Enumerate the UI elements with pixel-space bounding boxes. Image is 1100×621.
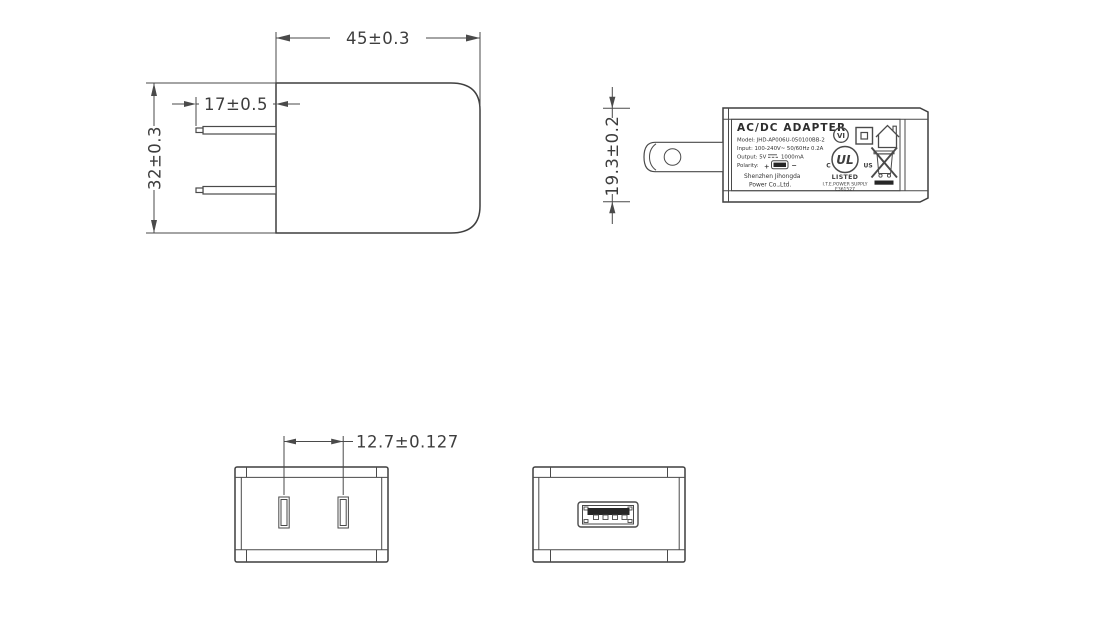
dimension-prong-length: 17±0.5: [172, 95, 300, 126]
dim-prong-spacing-text: 12.7±0.127: [356, 433, 459, 452]
rear-view: [533, 467, 685, 562]
ul-listed-icon: UL C US LISTED I.T.E.POWER SUPPLY E36152…: [822, 147, 872, 193]
dim-body-height-text: 32±0.3: [146, 126, 165, 190]
dim-body-width-text: 45±0.3: [346, 29, 410, 48]
usb-contact: [594, 515, 599, 520]
usb-polarity-icon: [772, 161, 789, 169]
polarity-minus-sign: −: [792, 162, 797, 170]
label-output-suffix: 1000mA: [781, 155, 804, 161]
label-company-line1: Shenzhen Jihongda: [744, 174, 801, 180]
double-insulation-icon: [856, 128, 873, 145]
dim-body-thickness-text: 19.3±0.2: [603, 116, 622, 197]
weee-bin-icon: [872, 148, 898, 185]
label-model: Model: JHD-AP006U-050100BB-2: [737, 138, 825, 144]
label-polarity: Polarity:: [737, 163, 759, 169]
usb-contact: [603, 515, 608, 520]
front-view: 12.7±0.127: [235, 433, 459, 563]
prong-slot-left: [279, 497, 289, 528]
svg-text:VI: VI: [837, 132, 845, 140]
polarity-plus-sign: +: [764, 163, 769, 171]
product-label: AC/DC ADAPTER Model: JHD-AP006U-050100BB…: [732, 119, 901, 192]
label-output-prefix: Output: 5V: [737, 155, 767, 161]
label-company-line2: Power Co.,Ltd.: [749, 183, 791, 189]
dim-prong-length-text: 17±0.5: [204, 95, 268, 114]
plug-prong-top: [196, 127, 276, 135]
usb-contact: [613, 515, 618, 520]
dimension-body-thickness: 19.3±0.2: [601, 87, 630, 224]
label-input: Input: 100-240V~ 50/60Hz 0.2A: [737, 146, 824, 152]
svg-text:UL: UL: [836, 153, 853, 167]
dimension-prong-spacing: 12.7±0.127: [284, 433, 459, 496]
usb-port: [578, 502, 638, 527]
prong-slot-right: [338, 497, 348, 528]
adapter-body-side: [276, 83, 480, 233]
plug-prong-bottom: [196, 187, 276, 195]
drawing-svg: 45±0.3 17±0.5 32±0.3: [0, 0, 1100, 621]
indoor-use-icon: [876, 126, 899, 148]
plug-blade: [644, 142, 723, 171]
svg-text:US: US: [864, 163, 873, 170]
adapter-body-front: [235, 467, 388, 562]
dc-symbol-icon: [768, 155, 778, 158]
svg-text:LISTED: LISTED: [832, 174, 859, 181]
dimension-body-width: 45±0.3: [276, 28, 480, 106]
adapter-technical-drawing: 45±0.3 17±0.5 32±0.3: [0, 0, 1100, 621]
usb-tongue: [588, 508, 630, 515]
svg-text:E361527: E361527: [835, 187, 855, 193]
usb-contact: [622, 515, 627, 520]
side-view: 45±0.3 17±0.5 32±0.3: [145, 28, 480, 233]
label-title: AC/DC ADAPTER: [737, 122, 846, 134]
svg-text:C: C: [826, 163, 831, 170]
top-view: 19.3±0.2 AC/DC ADAPTER Model: JHD-AP006U…: [601, 87, 928, 224]
